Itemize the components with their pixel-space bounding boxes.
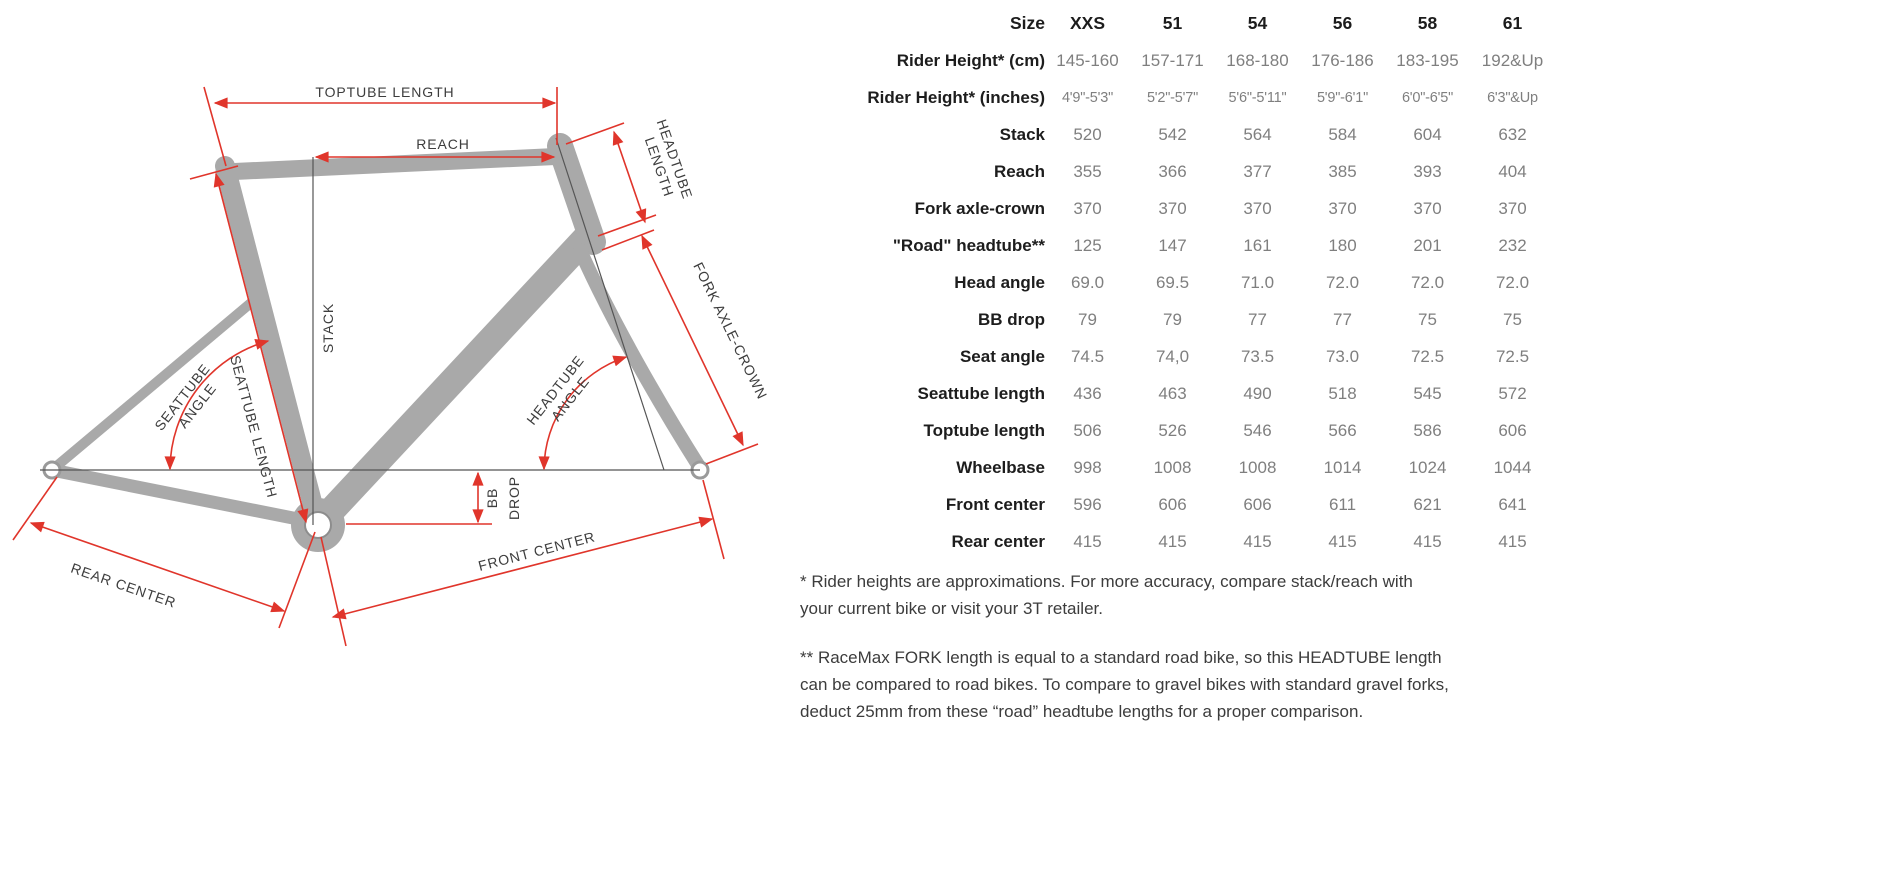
cell: 415 [1130, 532, 1215, 552]
cell: 415 [1045, 532, 1130, 552]
cell: 5'2"-5'7" [1130, 90, 1215, 106]
cell: 73.5 [1215, 347, 1300, 367]
cell: 572 [1470, 384, 1555, 404]
cell: 404 [1470, 162, 1555, 182]
row-label: Rear center [855, 532, 1045, 552]
cell: 436 [1045, 384, 1130, 404]
table-row: "Road" headtube**125147161180201232 [855, 227, 1555, 264]
cell: 611 [1300, 495, 1385, 515]
cell: 232 [1470, 236, 1555, 256]
cell: 604 [1385, 125, 1470, 145]
cell: 69.5 [1130, 273, 1215, 293]
cell: 157-171 [1130, 51, 1215, 71]
cell: 370 [1300, 199, 1385, 219]
cell: 621 [1385, 495, 1470, 515]
footnote-line: can be compared to road bikes. To compar… [800, 671, 1530, 698]
frontcenter-extension-left [321, 537, 346, 646]
cell: 1014 [1300, 458, 1385, 478]
cell: 5'9"-6'1" [1300, 90, 1385, 106]
row-label: "Road" headtube** [855, 236, 1045, 256]
table-row: Rear center415415415415415415 [855, 523, 1555, 560]
cell: 415 [1385, 532, 1470, 552]
row-label: Toptube length [855, 421, 1045, 441]
toptube-extension-left [204, 87, 226, 166]
toptube-length-label: TOPTUBE LENGTH [315, 84, 454, 100]
headtube-dimension-line [614, 132, 645, 222]
bb-label: BB [484, 488, 500, 508]
cell: 586 [1385, 421, 1470, 441]
row-label: Seat angle [855, 347, 1045, 367]
cell: 632 [1470, 125, 1555, 145]
cell: 584 [1300, 125, 1385, 145]
cell: 74.5 [1045, 347, 1130, 367]
cell: 355 [1045, 162, 1130, 182]
cell: 520 [1045, 125, 1130, 145]
bike-frame [52, 146, 700, 525]
cell: 1008 [1130, 458, 1215, 478]
seattube-angle-label: SEATTUBE ANGLE [151, 357, 229, 444]
cell: 58 [1385, 13, 1470, 34]
cell: 463 [1130, 384, 1215, 404]
cell: 180 [1300, 236, 1385, 256]
cell: 79 [1045, 310, 1130, 330]
cell: 415 [1300, 532, 1385, 552]
rearcenter-extension-right [279, 532, 315, 628]
cell: 183-195 [1385, 51, 1470, 71]
drop-label: DROP [506, 476, 522, 520]
cell: 6'3"&Up [1470, 90, 1555, 106]
table-header-row: SizeXXS5154565861 [855, 5, 1555, 42]
cell: 366 [1130, 162, 1215, 182]
cell: 526 [1130, 421, 1215, 441]
table-row: Toptube length506526546566586606 [855, 412, 1555, 449]
cell: 566 [1300, 421, 1385, 441]
cell: 377 [1215, 162, 1300, 182]
cell: 564 [1215, 125, 1300, 145]
cell: 4'9"-5'3" [1045, 90, 1130, 106]
table-row: Reach355366377385393404 [855, 153, 1555, 190]
footnote: * Rider heights are approximations. For … [800, 568, 1530, 622]
cell: 201 [1385, 236, 1470, 256]
fork-extension-bottom [706, 444, 758, 464]
table-row: Seat angle74.574,073.573.072.572.5 [855, 338, 1555, 375]
cell: 490 [1215, 384, 1300, 404]
table-row: Rider Height* (inches)4'9"-5'3"5'2"-5'7"… [855, 79, 1555, 116]
cell: 145-160 [1045, 51, 1130, 71]
headtube-angle-label: HEADTUBE ANGLE [523, 348, 603, 438]
front-center-label: FRONT CENTER [477, 528, 597, 574]
toptube-tube [224, 156, 566, 172]
cell: 1044 [1470, 458, 1555, 478]
row-label: Seattube length [855, 384, 1045, 404]
fork-extension-top [602, 230, 654, 250]
cell: 641 [1470, 495, 1555, 515]
row-label: Stack [855, 125, 1045, 145]
cell: 998 [1045, 458, 1130, 478]
cell: 370 [1215, 199, 1300, 219]
cell: 161 [1215, 236, 1300, 256]
cell: 1024 [1385, 458, 1470, 478]
cell: 542 [1130, 125, 1215, 145]
table-row: Seattube length436463490518545572 [855, 375, 1555, 412]
row-label: Front center [855, 495, 1045, 515]
row-label: Head angle [855, 273, 1045, 293]
headtube-tube [560, 146, 593, 242]
footnote-line: deduct 25mm from these “road” headtube l… [800, 698, 1530, 725]
cell: 545 [1385, 384, 1470, 404]
cell: 370 [1045, 199, 1130, 219]
cell: 71.0 [1215, 273, 1300, 293]
cell: XXS [1045, 13, 1130, 34]
cell: 1008 [1215, 458, 1300, 478]
cell: 5'6"-5'11" [1215, 90, 1300, 106]
cell: 54 [1215, 13, 1300, 34]
cell: 72.5 [1385, 347, 1470, 367]
row-label: Reach [855, 162, 1045, 182]
footnote-line: ** RaceMax FORK length is equal to a sta… [800, 644, 1530, 671]
cell: 74,0 [1130, 347, 1215, 367]
cell: 125 [1045, 236, 1130, 256]
footnote: ** RaceMax FORK length is equal to a sta… [800, 644, 1530, 725]
bb-hole [305, 512, 331, 538]
cell: 606 [1470, 421, 1555, 441]
cell: 506 [1045, 421, 1130, 441]
cell: 73.0 [1300, 347, 1385, 367]
cell: 147 [1130, 236, 1215, 256]
cell: 370 [1470, 199, 1555, 219]
cell: 72.5 [1470, 347, 1555, 367]
footnote-line: * Rider heights are approximations. For … [800, 568, 1530, 595]
cell: 75 [1470, 310, 1555, 330]
table-row: Head angle69.069.571.072.072.072.0 [855, 264, 1555, 301]
row-label: Rider Height* (cm) [855, 51, 1045, 71]
cell: 168-180 [1215, 51, 1300, 71]
table-row: Stack520542564584604632 [855, 116, 1555, 153]
size-header: Size [855, 13, 1045, 34]
reach-label: REACH [416, 136, 470, 152]
cell: 75 [1385, 310, 1470, 330]
cell: 72.0 [1300, 273, 1385, 293]
row-label: Fork axle-crown [855, 199, 1045, 219]
frontcenter-dimension-line [333, 519, 712, 617]
table-row: Front center596606606611621641 [855, 486, 1555, 523]
frontcenter-extension-right [703, 480, 724, 559]
cell: 79 [1130, 310, 1215, 330]
cell: 56 [1300, 13, 1385, 34]
cell: 393 [1385, 162, 1470, 182]
row-label: Wheelbase [855, 458, 1045, 478]
cell: 606 [1130, 495, 1215, 515]
cell: 606 [1215, 495, 1300, 515]
cell: 546 [1215, 421, 1300, 441]
cell: 77 [1215, 310, 1300, 330]
frame-geometry-diagram: TOPTUBE LENGTH REACH HEADTUBE LENGTH FOR… [0, 60, 790, 700]
cell: 72.0 [1385, 273, 1470, 293]
steering-axis-line [556, 138, 664, 470]
table-row: BB drop797977777575 [855, 301, 1555, 338]
stack-label: STACK [320, 303, 336, 353]
downtube-tube [318, 238, 586, 525]
cell: 72.0 [1470, 273, 1555, 293]
cell: 370 [1385, 199, 1470, 219]
cell: 69.0 [1045, 273, 1130, 293]
cell: 176-186 [1300, 51, 1385, 71]
fork-blade [580, 250, 700, 468]
row-label: BB drop [855, 310, 1045, 330]
cell: 77 [1300, 310, 1385, 330]
cell: 61 [1470, 13, 1555, 34]
cell: 385 [1300, 162, 1385, 182]
headtube-length-label: HEADTUBE LENGTH [638, 117, 698, 211]
table-row: Fork axle-crown370370370370370370 [855, 190, 1555, 227]
cell: 518 [1300, 384, 1385, 404]
cell: 51 [1130, 13, 1215, 34]
cell: 192&Up [1470, 51, 1555, 71]
table-row: Rider Height* (cm)145-160157-171168-1801… [855, 42, 1555, 79]
cell: 370 [1130, 199, 1215, 219]
cell: 6'0"-6'5" [1385, 90, 1470, 106]
table-row: Wheelbase99810081008101410241044 [855, 449, 1555, 486]
cell: 415 [1470, 532, 1555, 552]
fork-axle-crown-label: FORK AXLE-CROWN [690, 260, 770, 402]
footnote-line: your current bike or visit your 3T retai… [800, 595, 1530, 622]
cell: 415 [1215, 532, 1300, 552]
cell: 596 [1045, 495, 1130, 515]
geometry-table: SizeXXS5154565861Rider Height* (cm)145-1… [855, 5, 1555, 560]
seatstay-tube [52, 297, 258, 470]
footnotes: * Rider heights are approximations. For … [800, 568, 1530, 747]
rear-center-label: REAR CENTER [69, 560, 178, 611]
row-label: Rider Height* (inches) [855, 88, 1045, 108]
